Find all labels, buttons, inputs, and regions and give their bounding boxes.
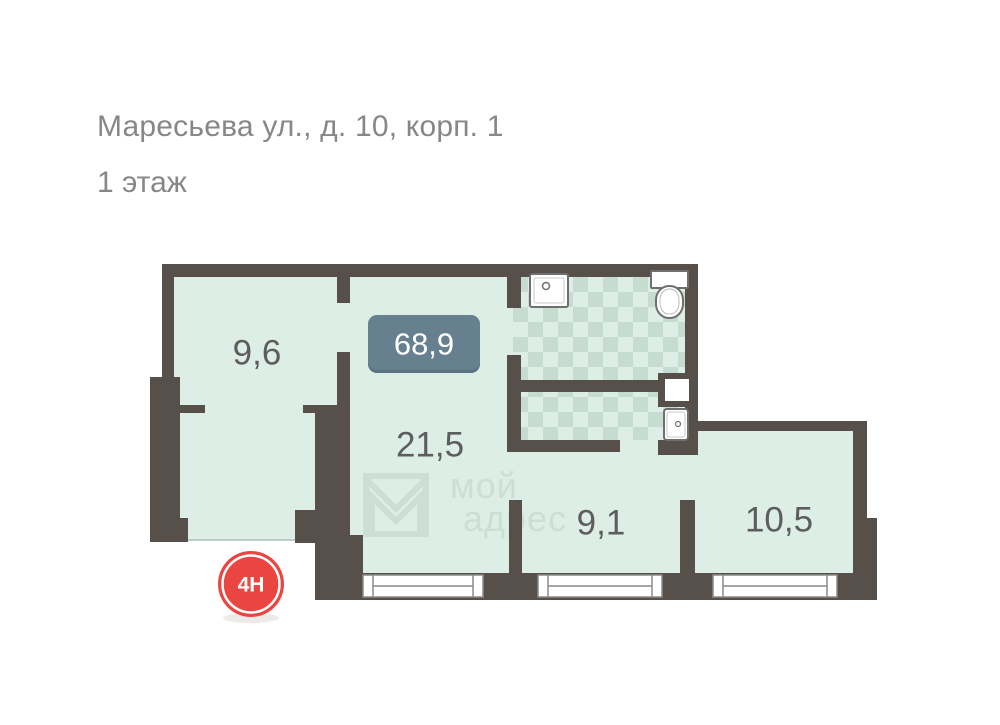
sink-icon [664,409,688,440]
window [538,575,662,597]
windows [363,575,837,597]
toilet-icon [651,271,688,318]
floor-plan: мой адрес [140,250,900,630]
room-area-label: 9,1 [577,504,626,543]
window [363,575,483,597]
plan-header: Маресьева ул., д. 10, корп. 1 1 этаж [97,110,504,200]
total-area-badge: 68,9 [368,315,480,373]
sink-icon [530,274,568,307]
room-area-label: 9,6 [233,334,282,373]
unit-number-value: 4Н [238,574,265,597]
room-area-label: 10,5 [745,501,813,540]
floor-plan-container: мой адрес [140,250,900,630]
room-area-label: 21,5 [396,426,464,465]
floor-title: 1 этаж [97,166,504,200]
window [713,575,837,597]
ventilation-shaft [658,373,698,407]
unit-number-badge: 4Н [218,551,284,623]
total-area-value: 68,9 [394,327,454,362]
address-title: Маресьева ул., д. 10, корп. 1 [97,110,504,144]
